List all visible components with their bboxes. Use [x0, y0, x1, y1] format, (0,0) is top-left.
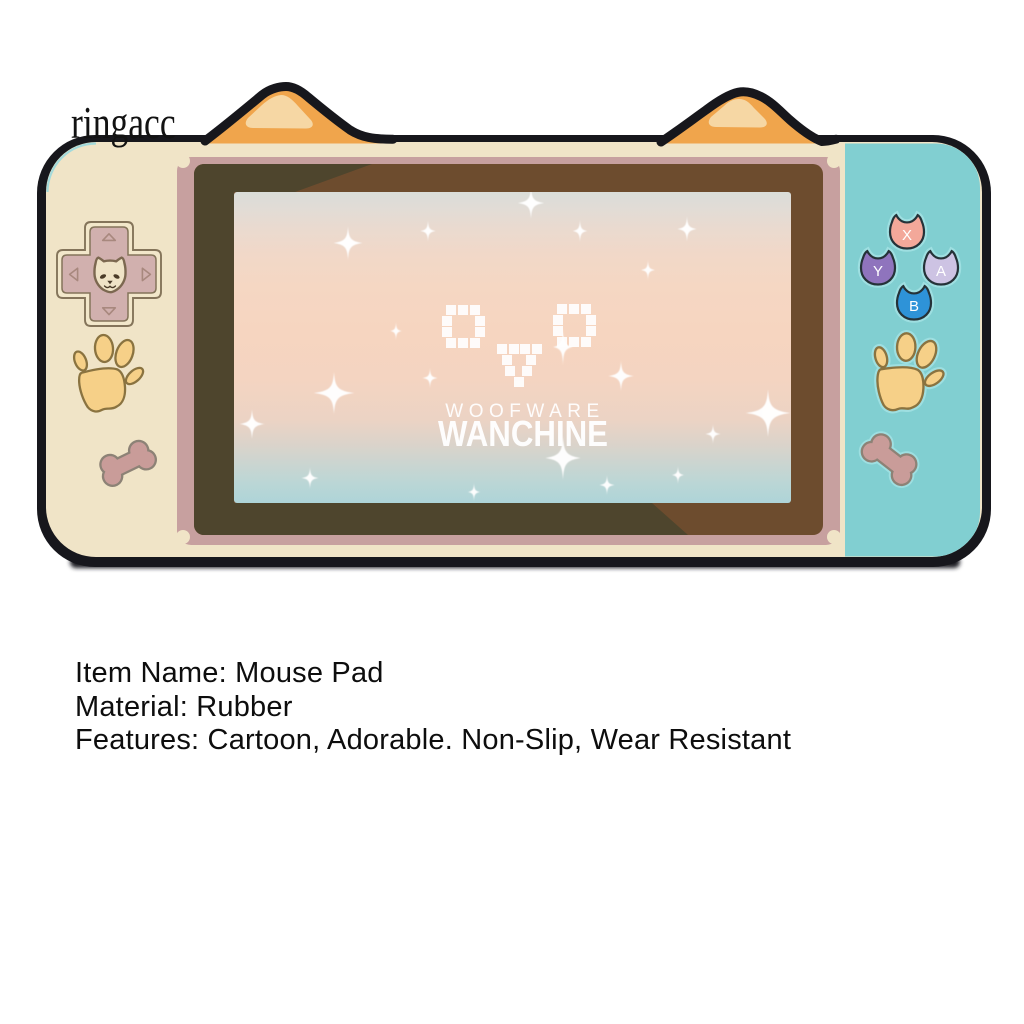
svg-text:B: B	[909, 298, 919, 315]
svg-text:A: A	[936, 263, 946, 280]
svg-text:WANCHINE: WANCHINE	[438, 413, 608, 454]
svg-text:X: X	[902, 227, 912, 244]
svg-text:Y: Y	[873, 263, 883, 280]
